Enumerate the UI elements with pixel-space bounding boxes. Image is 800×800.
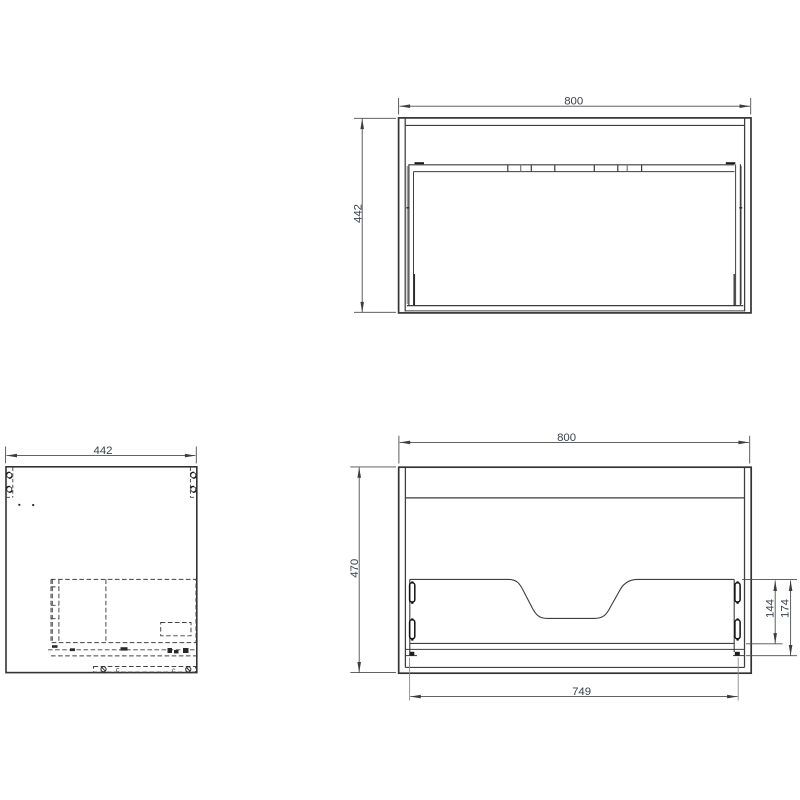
svg-text:174: 174	[780, 599, 792, 618]
svg-text:800: 800	[557, 432, 576, 444]
svg-text:749: 749	[572, 686, 591, 698]
svg-text:442: 442	[353, 204, 365, 223]
svg-text:c: c	[116, 667, 120, 674]
svg-text:144: 144	[764, 599, 776, 618]
svg-text:470: 470	[349, 559, 361, 578]
svg-text:800: 800	[564, 96, 583, 108]
svg-text:442: 442	[93, 445, 112, 457]
svg-text:c: c	[172, 668, 176, 675]
